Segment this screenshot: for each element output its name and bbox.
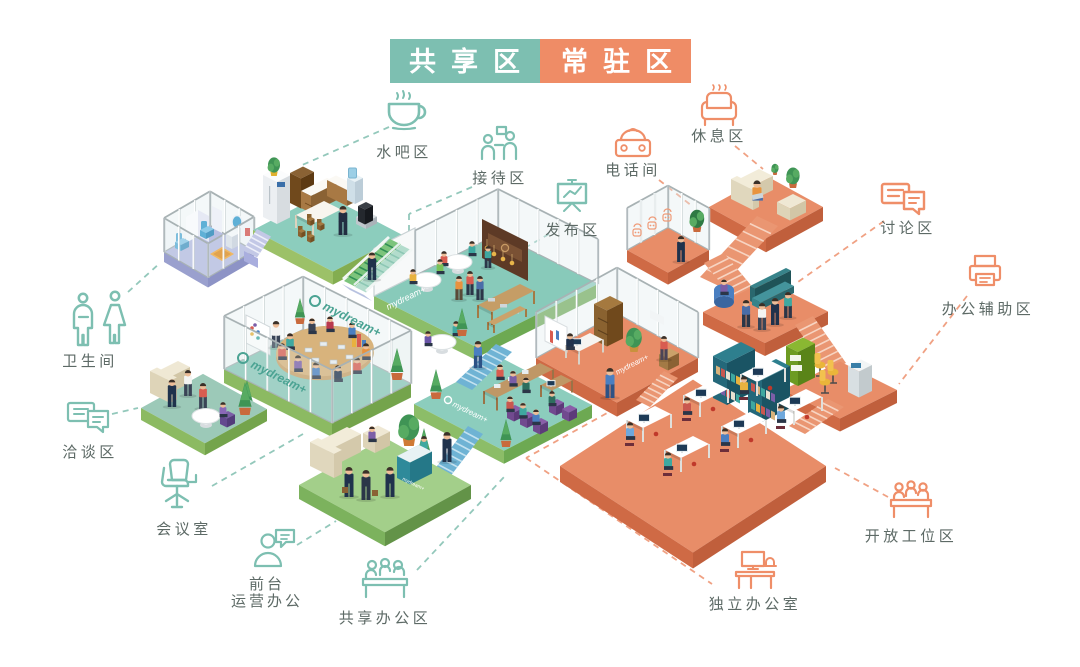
svg-text:卫生间: 卫生间 bbox=[62, 353, 118, 370]
svg-text:常驻区: 常驻区 bbox=[561, 47, 687, 77]
svg-text:共享办公区: 共享办公区 bbox=[339, 610, 432, 627]
svg-text:讨论区: 讨论区 bbox=[880, 220, 936, 237]
svg-text:水吧区: 水吧区 bbox=[376, 144, 432, 161]
svg-text:前台: 前台 bbox=[249, 576, 285, 593]
svg-text:共享区: 共享区 bbox=[409, 46, 535, 77]
svg-text:电话间: 电话间 bbox=[605, 162, 661, 179]
svg-text:洽谈区: 洽谈区 bbox=[62, 444, 118, 461]
svg-text:休息区: 休息区 bbox=[691, 128, 747, 145]
svg-text:发布区: 发布区 bbox=[545, 222, 601, 239]
svg-text:会议室: 会议室 bbox=[156, 521, 212, 538]
svg-text:办公辅助区: 办公辅助区 bbox=[942, 301, 1035, 318]
svg-text:独立办公室: 独立办公室 bbox=[709, 596, 802, 613]
svg-text:运营办公: 运营办公 bbox=[231, 593, 303, 610]
svg-text:开放工位区: 开放工位区 bbox=[865, 528, 958, 545]
svg-text:接待区: 接待区 bbox=[472, 170, 528, 187]
